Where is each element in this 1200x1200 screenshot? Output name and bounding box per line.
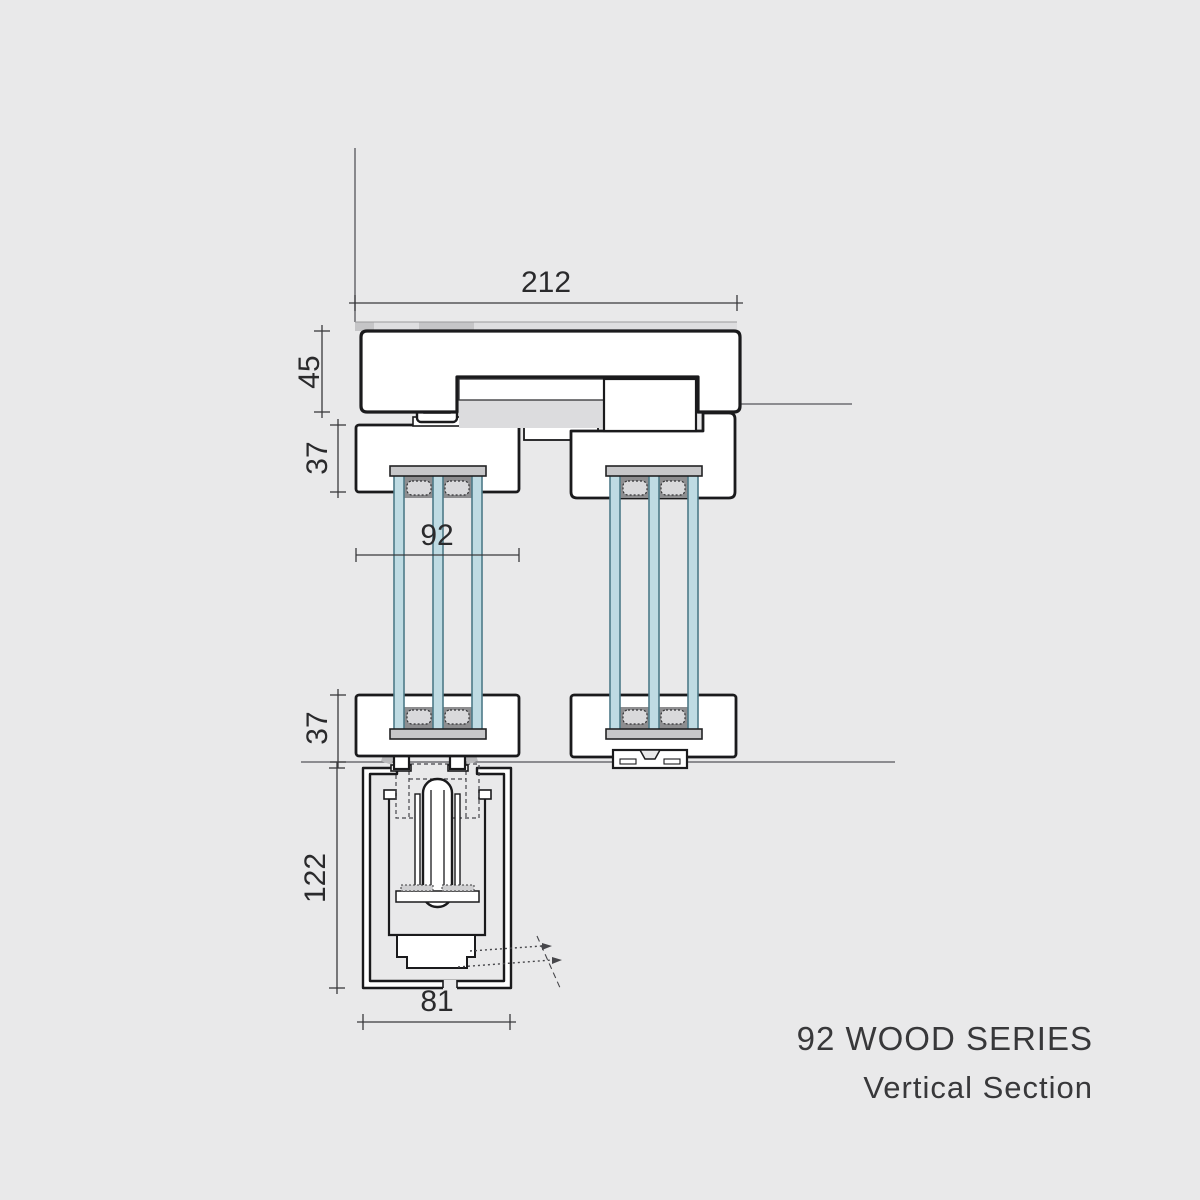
roller-support-plate	[396, 891, 479, 902]
head-pocket-insert	[459, 379, 604, 400]
dimension-top-rail: 37	[301, 419, 346, 498]
dimension-label-92: 92	[420, 519, 453, 552]
technical-drawing-canvas: 212 45 37 92 37	[0, 0, 1200, 1200]
dimension-label-37-bottom: 37	[301, 711, 334, 744]
dimension-bottom-rail: 37	[301, 689, 346, 768]
dimension-label-81: 81	[420, 985, 453, 1018]
dimension-sash-depth: 92	[356, 519, 519, 562]
track-step-block	[397, 935, 475, 968]
dimension-label-212: 212	[521, 266, 571, 299]
dimension-head-height: 45	[293, 325, 330, 418]
floor-track-assembly	[363, 764, 562, 990]
title-section-type: Vertical Section	[863, 1070, 1093, 1105]
title-block: 92 WOOD SERIES Vertical Section	[797, 1020, 1093, 1105]
title-series: 92 WOOD SERIES	[797, 1020, 1093, 1057]
glazing-right-sash	[606, 466, 702, 739]
bottom-guide-clip	[613, 750, 687, 768]
head-back-channel-block	[604, 379, 696, 431]
glazing-cap-bottom-left	[390, 729, 486, 739]
glazing-cap-top-left	[390, 466, 486, 476]
dimension-label-45: 45	[293, 355, 326, 388]
dimension-label-37-top: 37	[301, 441, 334, 474]
dimension-track-width: 81	[357, 985, 516, 1030]
dimension-label-122: 122	[299, 853, 332, 903]
vertical-section-drawing: 212 45 37 92 37	[0, 0, 1200, 1200]
glazing-left-sash	[390, 466, 486, 739]
dimension-track-depth: 122	[299, 762, 345, 994]
dimension-overall-width: 212	[349, 266, 743, 311]
glazing-cap-top-right	[606, 466, 702, 476]
glazing-cap-bottom-right	[606, 729, 702, 739]
